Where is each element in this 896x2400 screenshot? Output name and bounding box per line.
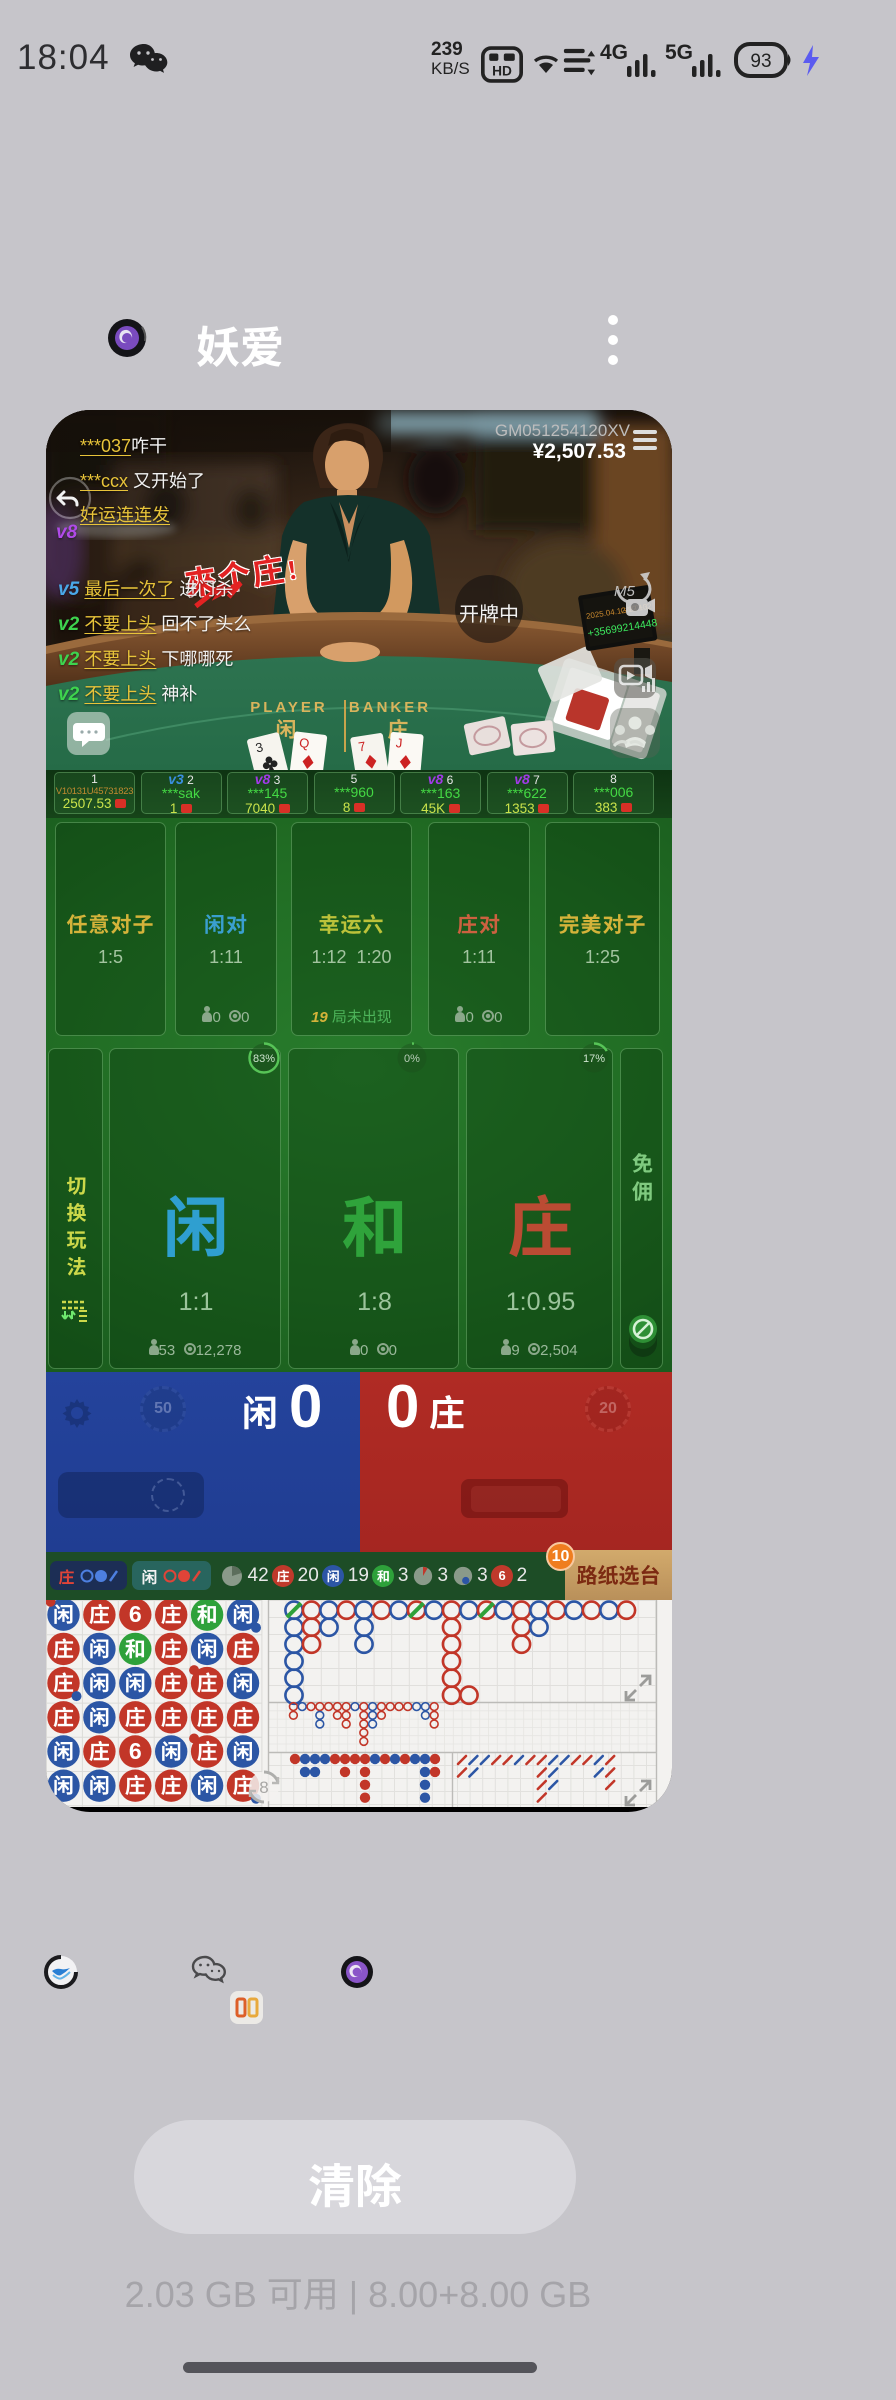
svg-text:庄: 庄 bbox=[125, 1702, 146, 1732]
svg-text:17%: 17% bbox=[583, 1053, 605, 1065]
svg-text:闲: 闲 bbox=[197, 1770, 218, 1800]
svg-text:庄: 庄 bbox=[233, 1702, 254, 1732]
svg-text:闲: 闲 bbox=[89, 1668, 110, 1698]
svg-text:庄: 庄 bbox=[125, 1770, 146, 1800]
svg-text:庄: 庄 bbox=[161, 1668, 182, 1698]
svg-text:6: 6 bbox=[129, 1601, 142, 1627]
svg-text:庄: 庄 bbox=[161, 1770, 182, 1800]
svg-text:8: 8 bbox=[259, 1778, 268, 1797]
svg-text:庄: 庄 bbox=[161, 1600, 182, 1629]
svg-text:闲: 闲 bbox=[53, 1770, 74, 1800]
svg-text:闲: 闲 bbox=[125, 1668, 146, 1698]
svg-text:93: 93 bbox=[750, 51, 771, 72]
svg-text:HD: HD bbox=[492, 63, 512, 78]
svg-text:庄: 庄 bbox=[53, 1668, 74, 1698]
svg-text:庄: 庄 bbox=[161, 1633, 182, 1663]
svg-text:庄: 庄 bbox=[89, 1600, 110, 1629]
svg-text:闲: 闲 bbox=[89, 1633, 110, 1663]
svg-text:闲: 闲 bbox=[233, 1668, 254, 1698]
svg-text:庄: 庄 bbox=[53, 1633, 74, 1663]
svg-text:闲: 闲 bbox=[233, 1736, 254, 1766]
svg-text:庄: 庄 bbox=[197, 1702, 218, 1732]
svg-text:庄: 庄 bbox=[233, 1633, 254, 1663]
svg-text:0%: 0% bbox=[404, 1053, 420, 1065]
svg-text:83%: 83% bbox=[253, 1053, 275, 1065]
svg-text:闲: 闲 bbox=[89, 1770, 110, 1800]
svg-text:庄: 庄 bbox=[89, 1736, 110, 1766]
svg-text:闲: 闲 bbox=[233, 1600, 254, 1629]
svg-text:庄: 庄 bbox=[197, 1668, 218, 1698]
svg-text:和: 和 bbox=[125, 1633, 146, 1663]
svg-text:和: 和 bbox=[197, 1600, 218, 1629]
svg-text:庄: 庄 bbox=[197, 1736, 218, 1766]
svg-text:闲: 闲 bbox=[53, 1736, 74, 1766]
svg-text:闲: 闲 bbox=[53, 1600, 74, 1629]
svg-text:闲: 闲 bbox=[89, 1702, 110, 1732]
svg-text:闲: 闲 bbox=[197, 1633, 218, 1663]
svg-text:6: 6 bbox=[129, 1738, 142, 1764]
svg-text:庄: 庄 bbox=[53, 1702, 74, 1732]
svg-text:闲: 闲 bbox=[161, 1736, 182, 1766]
svg-text:M5: M5 bbox=[614, 583, 635, 600]
svg-text:庄: 庄 bbox=[161, 1702, 182, 1732]
